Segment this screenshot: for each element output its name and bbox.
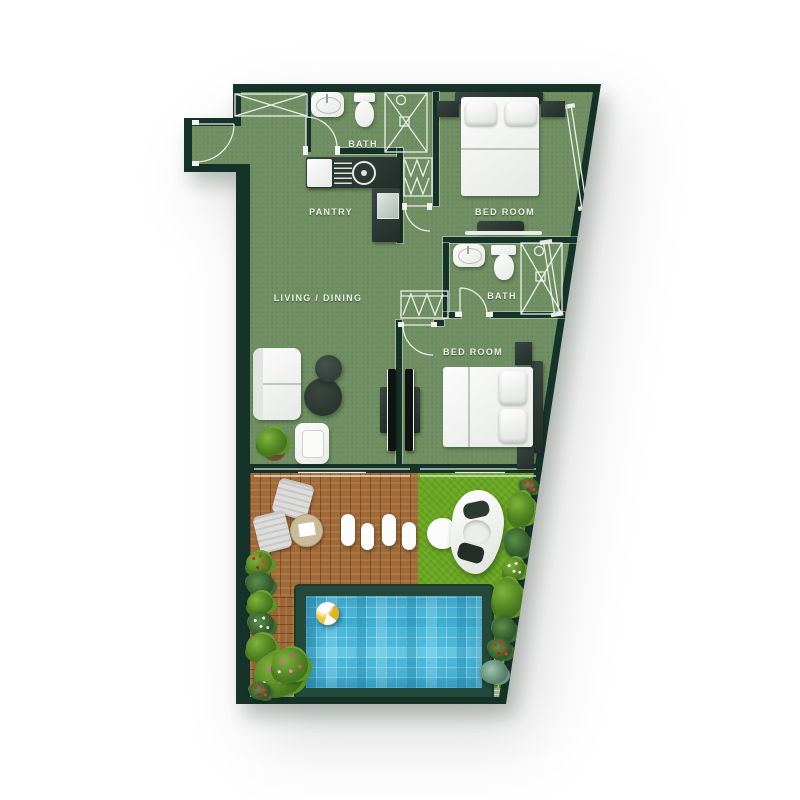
- living-tv: [387, 369, 396, 451]
- sink-tap: [326, 94, 328, 103]
- shrub: [247, 592, 273, 614]
- pantry-appliance: [377, 193, 399, 219]
- open-book: [297, 522, 316, 537]
- living-sofa: [253, 348, 301, 420]
- label-bath-top: BATH: [348, 139, 378, 149]
- label-living-dining: LIVING / DINING: [274, 293, 363, 303]
- bedroom1-bed: [461, 97, 539, 196]
- bedroom1-shelf: [465, 231, 542, 235]
- living-armchair: [295, 423, 329, 464]
- stepping-stone: [361, 523, 374, 550]
- sofa-backrest: [253, 348, 263, 420]
- bedroom2-nightstand-bottom: [517, 446, 534, 469]
- bath2-sink: [453, 244, 485, 267]
- blanket-fold: [468, 367, 470, 447]
- stepping-stone: [382, 514, 396, 546]
- living-sliding-door: [254, 469, 410, 476]
- bedroom2-sliding-door: [420, 469, 536, 476]
- sink-basin: [316, 97, 341, 114]
- coffee-table-large: [304, 378, 342, 416]
- entrance-door: [196, 124, 234, 162]
- floor-plan: BATH PANTRY BED ROOM LIVING / DINING BAT…: [0, 0, 800, 800]
- deck-table: [290, 514, 323, 547]
- bedroom1-door: [405, 206, 430, 231]
- blanket-fold: [461, 148, 539, 150]
- label-bath-mid: BATH: [487, 291, 517, 301]
- bedroom1-wardrobe-symbol: [404, 158, 432, 196]
- flower-bush: [249, 682, 271, 700]
- pillow: [465, 102, 497, 126]
- sofa-seam: [263, 383, 301, 385]
- bedroom1-nightstand-right: [541, 101, 565, 117]
- flower-bush: [248, 612, 274, 636]
- bedroom2-wardrobe-symbol: [401, 291, 448, 318]
- armchair-cushion: [302, 430, 324, 458]
- bath2-toilet-bowl: [494, 254, 514, 280]
- entry-closet-symbol: [235, 94, 307, 116]
- bedroom2-bed: [443, 367, 533, 447]
- bath1-sink: [311, 92, 344, 117]
- coffee-table-small: [315, 355, 342, 382]
- shrub: [504, 528, 530, 558]
- pantry-sink-drain: [361, 170, 367, 176]
- bedroom2-door: [403, 325, 433, 355]
- bath1-shower: [385, 93, 427, 152]
- label-bedroom-top: BED ROOM: [475, 207, 535, 217]
- bath1-door: [306, 117, 337, 148]
- living-potted-plant: [257, 428, 287, 455]
- sink-basin: [458, 248, 482, 264]
- pillow: [505, 102, 537, 126]
- bath1-toilet-bowl: [355, 101, 374, 127]
- label-pantry: PANTRY: [309, 207, 353, 217]
- bedroom1-window: [563, 104, 590, 210]
- palm-plant: [492, 578, 522, 618]
- shrub: [480, 660, 508, 684]
- bath2-door: [460, 288, 487, 315]
- pod-pillow-top: [462, 499, 491, 520]
- pantry-sink: [352, 161, 376, 185]
- sink-tap: [467, 246, 469, 254]
- pod-pillow-bottom: [456, 541, 486, 565]
- outer-walls: BATH PANTRY BED ROOM LIVING / DINING BAT…: [0, 0, 800, 800]
- pillow: [499, 409, 527, 443]
- floor-plan-image: BATH PANTRY BED ROOM LIVING / DINING BAT…: [0, 0, 800, 800]
- bedroom1-nightstand-left: [437, 101, 459, 117]
- pantry-fridge: [307, 159, 332, 187]
- pantry-cooktop: [334, 162, 352, 184]
- palm-plant: [508, 492, 534, 526]
- label-bedroom-mid: BED ROOM: [443, 347, 503, 357]
- flower-bush: [503, 558, 525, 580]
- stepping-stone: [341, 514, 355, 546]
- flower-bush: [246, 552, 272, 574]
- bath2-shower: [521, 243, 562, 314]
- bedroom2-nightstand-top: [515, 342, 532, 365]
- stepping-stone: [402, 522, 416, 550]
- plan-linework: [0, 0, 800, 800]
- flower-bush: [488, 638, 512, 660]
- bedroom2-tv: [405, 369, 414, 451]
- pillow: [499, 371, 527, 405]
- flower-bush: [272, 648, 308, 682]
